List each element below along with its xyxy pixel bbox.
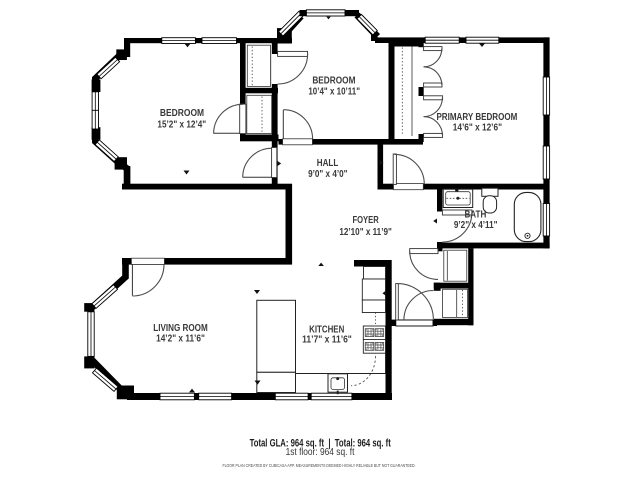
svg-text:BEDROOM: BEDROOM — [160, 107, 204, 119]
svg-text:FLOOR PLAN CREATED BY CUBICASA: FLOOR PLAN CREATED BY CUBICASA APP. MEAS… — [222, 463, 415, 468]
svg-text:14’6" x 12’6": 14’6" x 12’6" — [453, 121, 502, 133]
svg-text:11’7" x 11’6": 11’7" x 11’6" — [302, 334, 352, 346]
svg-text:9’0" x 4’0": 9’0" x 4’0" — [308, 168, 347, 180]
svg-text:HALL: HALL — [317, 157, 339, 169]
svg-text:14’2" x 11’6": 14’2" x 11’6" — [156, 333, 205, 345]
svg-text:10’4" x 10’11": 10’4" x 10’11" — [308, 85, 360, 97]
svg-text:FOYER: FOYER — [352, 214, 379, 226]
svg-text:15’2" x 12’4": 15’2" x 12’4" — [157, 118, 206, 130]
svg-text:9’2" x 4’11": 9’2" x 4’11" — [454, 219, 498, 231]
svg-text:12’10" x 11’9": 12’10" x 11’9" — [339, 226, 392, 238]
svg-text:1st floor: 964 sq. ft: 1st floor: 964 sq. ft — [286, 447, 355, 458]
